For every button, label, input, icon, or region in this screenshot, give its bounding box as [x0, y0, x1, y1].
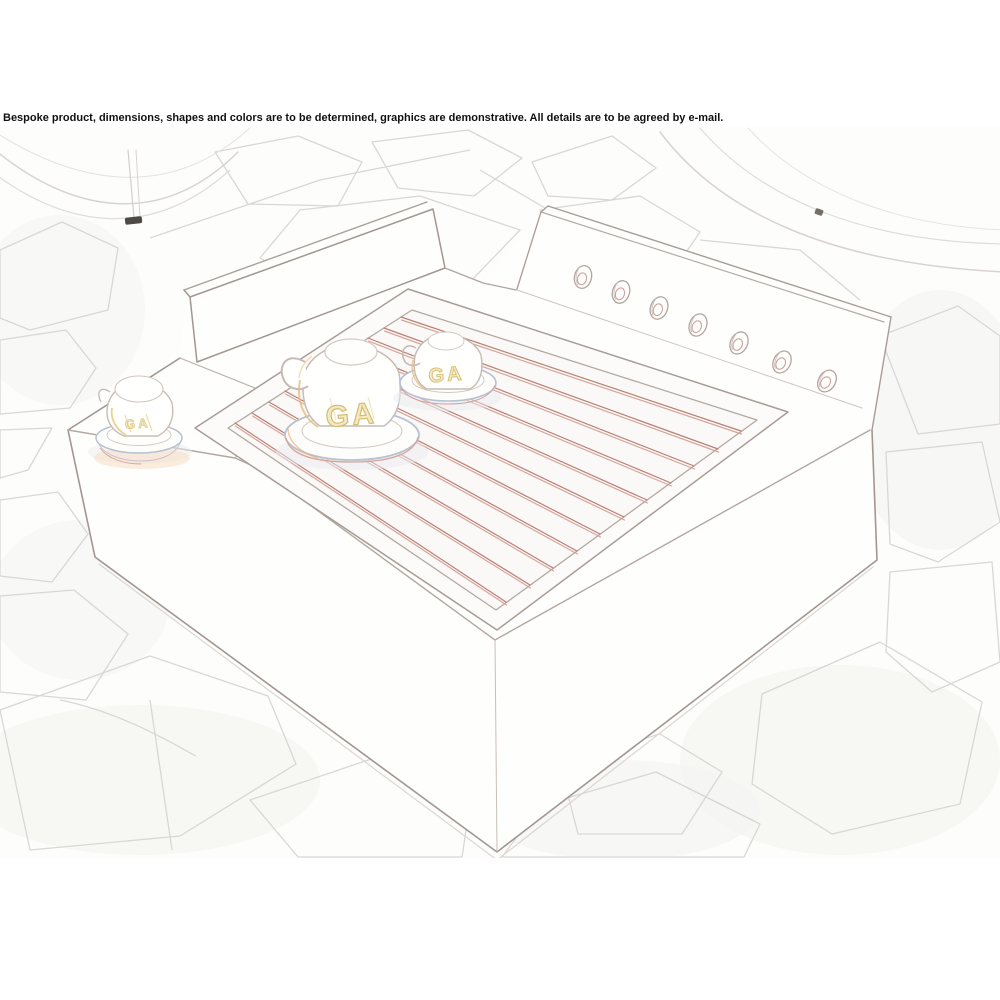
cup-monogram: GA: [324, 397, 378, 434]
product-sketch: GA GA GA: [0, 127, 1000, 858]
cup-monogram: GA: [428, 362, 466, 387]
concept-image: Bespoke product, dimensions, shapes and …: [0, 0, 1000, 1000]
cup-monogram: GA: [124, 415, 150, 432]
disclaimer-text: Bespoke product, dimensions, shapes and …: [3, 112, 723, 124]
product-photo-area: GA GA GA: [0, 127, 1000, 858]
